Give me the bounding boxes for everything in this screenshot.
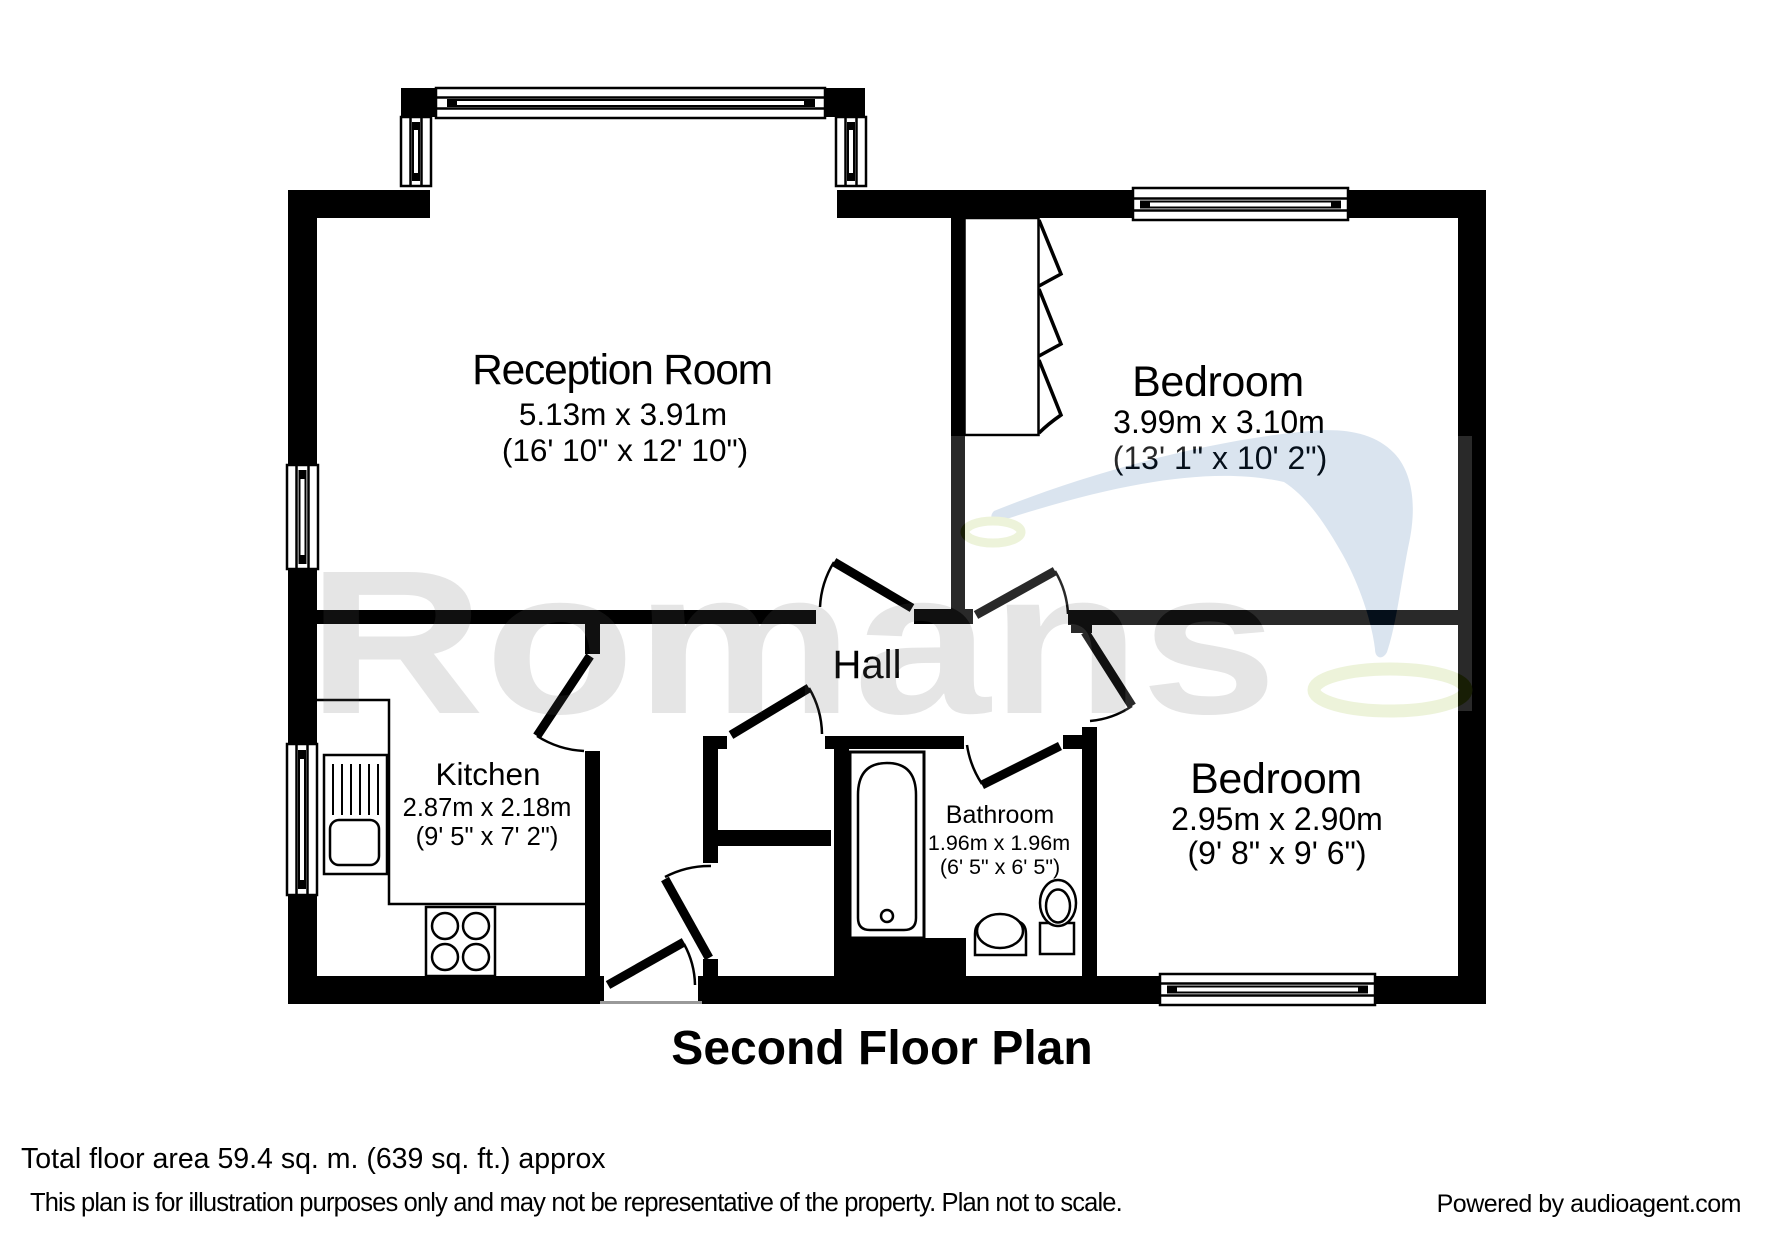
svg-text:2.87m x 2.18m: 2.87m x 2.18m bbox=[403, 794, 572, 822]
svg-text:Total floor area 59.4 sq. m. (: Total floor area 59.4 sq. m. (639 sq. ft… bbox=[21, 1143, 606, 1175]
svg-text:Reception Room: Reception Room bbox=[472, 347, 772, 394]
svg-text:This plan is for illustration: This plan is for illustration purposes o… bbox=[30, 1189, 1122, 1217]
svg-text:(9' 8" x 9' 6"): (9' 8" x 9' 6") bbox=[1188, 835, 1367, 871]
svg-text:Second Floor Plan: Second Floor Plan bbox=[671, 1022, 1092, 1075]
svg-text:2.95m x 2.90m: 2.95m x 2.90m bbox=[1171, 801, 1383, 837]
svg-text:5.13m x 3.91m: 5.13m x 3.91m bbox=[519, 396, 727, 432]
svg-text:Bedroom: Bedroom bbox=[1132, 358, 1304, 406]
svg-text:(9' 5" x 7' 2"): (9' 5" x 7' 2") bbox=[416, 823, 559, 851]
svg-text:Powered by audioagent.com: Powered by audioagent.com bbox=[1437, 1190, 1741, 1218]
svg-text:(6' 5" x 6' 5"): (6' 5" x 6' 5") bbox=[940, 855, 1060, 879]
svg-text:Kitchen: Kitchen bbox=[435, 756, 540, 792]
svg-text:1.96m x 1.96m: 1.96m x 1.96m bbox=[928, 831, 1070, 855]
svg-text:Bathroom: Bathroom bbox=[946, 801, 1054, 829]
svg-text:Bedroom: Bedroom bbox=[1190, 755, 1362, 803]
svg-text:(16' 10" x 12' 10"): (16' 10" x 12' 10") bbox=[502, 432, 748, 468]
svg-text:Romans: Romans bbox=[307, 527, 1277, 756]
